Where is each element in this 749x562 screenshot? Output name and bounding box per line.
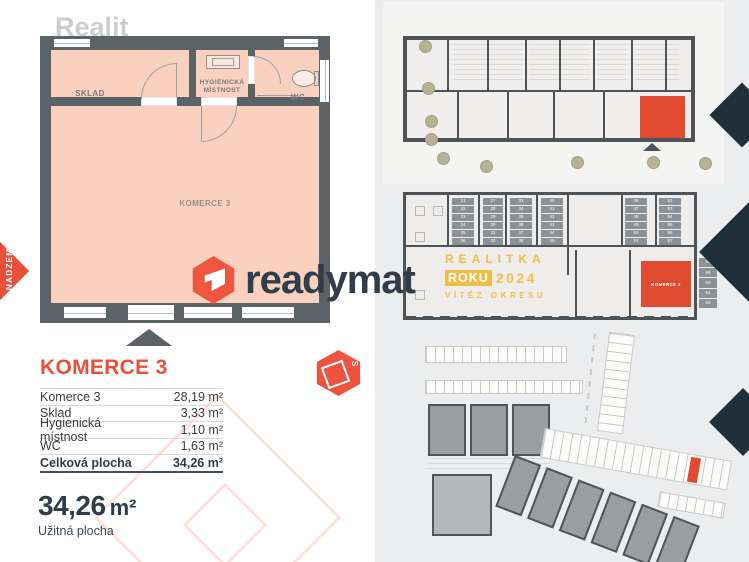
wall-segment: [505, 195, 507, 247]
row-label: Komerce 3: [40, 390, 100, 404]
storage-cell: 30: [483, 222, 503, 229]
parking-row: [425, 380, 583, 394]
storage-cell: 36: [510, 222, 532, 229]
award-badge-line1: REALITKA: [445, 252, 575, 266]
storage-cell: 35: [510, 214, 532, 221]
storage-cell: 21: [452, 198, 474, 205]
row-value: 34,26 m²: [151, 456, 223, 470]
unit-floor-plan: SKLAD HYGIENICKÁ MÍSTNOST WC KOMERCE 3: [0, 0, 375, 360]
area-unit: m²: [110, 495, 137, 521]
storage-cell: 27: [483, 198, 503, 205]
row-label: WC: [40, 439, 61, 453]
parking-row: [425, 346, 567, 363]
storage-column: 525354555657: [659, 198, 681, 245]
unit-title: KOMERCE 3: [40, 356, 223, 380]
tree-icon: [425, 115, 438, 128]
tree-icon: [647, 156, 660, 169]
door-leaf: [201, 106, 202, 142]
wall-segment: [478, 195, 480, 247]
storage-cell: 37: [510, 230, 532, 237]
row-value: 1,10 m²: [151, 423, 223, 437]
wall-interior-h: [51, 97, 319, 106]
unit-summary: KOMERCE 3 Komerce 3 28,19 m² Sklad 3,33 …: [40, 356, 223, 473]
brochure-page: Realit SKLAD: [0, 0, 749, 562]
tree-icon: [571, 156, 584, 169]
storage-cell: 52: [659, 198, 681, 205]
area-caption: Užitná plocha: [38, 524, 136, 538]
storage-column: 404142434445: [541, 198, 563, 245]
tree-icon: [437, 152, 450, 165]
storage-cell: 49: [625, 222, 647, 229]
storage-cell: 38: [510, 238, 532, 245]
storage-cell: 26: [452, 238, 474, 245]
door-opening: [201, 97, 237, 106]
compass-square-outline: [321, 360, 350, 389]
entrance-door: [128, 305, 174, 320]
parking-row: [597, 332, 635, 434]
wall-segment: [447, 195, 449, 247]
window-icon: [184, 307, 232, 318]
storage-cell: 57: [659, 238, 681, 245]
storage-cell: 44: [541, 230, 563, 237]
building-overview-panel: 212223242526 272829303132 333435363738 4…: [375, 0, 749, 562]
storage-column: 272829303132: [483, 198, 503, 245]
award-badge-line2: ROKU 2024: [445, 270, 575, 286]
facade-dashed-wall: [406, 316, 694, 319]
storage-cell: 40: [541, 198, 563, 205]
area-value: 34,26: [38, 490, 106, 522]
room-label-main: KOMERCE 3: [160, 199, 250, 208]
award-badge-word: ROKU: [445, 270, 492, 286]
storage-cell: 43: [541, 222, 563, 229]
building-block: [432, 474, 492, 536]
storage-cell: 47: [625, 206, 647, 213]
room-label-hygiene-line2: MÍSTNOST: [192, 87, 252, 95]
logo-flag-mark: [202, 268, 225, 292]
tree-icon: [425, 133, 438, 146]
wall-segment: [629, 250, 631, 318]
storage-cell: 54: [659, 214, 681, 221]
storage-column: 333435363738: [510, 198, 532, 245]
award-badge-line3: VÍTĚZ OKRESU: [445, 291, 575, 300]
award-badge: REALITKA ROKU 2024 VÍTĚZ OKRESU: [445, 252, 575, 300]
window-icon: [54, 39, 90, 47]
door-leaf: [176, 63, 177, 97]
storage-cell: 51: [625, 238, 647, 245]
room-label-hygiene-line1: HYGIENICKÁ: [192, 79, 252, 87]
row-label: Celková plocha: [40, 456, 132, 470]
table-row: Hygienická místnost 1,10 m²: [40, 422, 223, 439]
table-row: Komerce 3 28,19 m²: [40, 389, 223, 406]
readymat-logo-icon: [191, 256, 236, 304]
room-label-hygiene: HYGIENICKÁ MÍSTNOST: [192, 79, 252, 95]
furniture-icon: [415, 290, 425, 300]
tree-icon: [419, 40, 432, 53]
storage-cell: 22: [452, 206, 474, 213]
usable-area: 34,26 m² Užitná plocha: [38, 490, 136, 538]
window-icon: [320, 60, 329, 102]
highlighted-unit-middle: KOMERCE 3: [641, 261, 691, 307]
row-value: 1,63 m²: [151, 439, 223, 453]
storage-cell: 34: [510, 206, 532, 213]
storage-cell: 42: [541, 214, 563, 221]
storage-cell: 33: [510, 198, 532, 205]
toilet-icon: [314, 71, 319, 86]
storage-cell: 61: [699, 289, 717, 298]
wall-segment: [621, 195, 623, 247]
storage-cell: 45: [541, 238, 563, 245]
storage-cell: 56: [659, 230, 681, 237]
tree-icon: [699, 157, 712, 170]
storage-cell: 46: [625, 198, 647, 205]
level-badge-label: 1. NADZEMNÍ: [2, 238, 16, 302]
window-icon: [242, 307, 294, 318]
tree-icon: [422, 82, 435, 95]
readymat-logo: readymat: [191, 256, 415, 304]
storage-cell: 60: [699, 278, 717, 287]
wall-segment: [536, 195, 538, 247]
area-table: Komerce 3 28,19 m² Sklad 3,33 m² Hygieni…: [40, 388, 223, 473]
wall-segment: [655, 195, 657, 247]
storage-cell: 28: [483, 206, 503, 213]
toilet-icon: [292, 70, 316, 87]
storage-cell: 25: [452, 230, 474, 237]
building-block: [470, 404, 508, 456]
storage-cell: 29: [483, 214, 503, 221]
window-icon: [64, 307, 106, 318]
usable-area-value-row: 34,26 m²: [38, 490, 136, 522]
wall-segment: [406, 245, 694, 247]
storage-cell: 53: [659, 206, 681, 213]
table-row-total: Celková plocha 34,26 m²: [40, 455, 223, 473]
building-block: [428, 404, 466, 456]
storage-column: 212223242526: [452, 198, 474, 245]
tree-icon: [480, 160, 493, 173]
storage-cell: 31: [483, 230, 503, 237]
storage-cell: 32: [483, 238, 503, 245]
furniture-icon: [433, 206, 443, 216]
wall-segment: [575, 250, 577, 318]
furniture-icon: [415, 206, 425, 216]
storage-cell: 24: [452, 222, 474, 229]
compass-letter: S: [350, 361, 359, 366]
storage-cell: 55: [659, 222, 681, 229]
site-plan: [375, 330, 749, 562]
award-badge-year: 2024: [496, 270, 537, 286]
highlighted-unit-label: KOMERCE 3: [651, 282, 680, 287]
entrance-arrow-icon: [126, 329, 172, 346]
furniture-icon: [415, 232, 425, 242]
highlighted-parking-stall: [687, 457, 701, 483]
row-value: 3,33 m²: [151, 406, 223, 420]
trees: [375, 0, 749, 190]
readymat-logo-text: readymat: [245, 260, 415, 300]
storage-cell: 48: [625, 214, 647, 221]
storage-cell: 23: [452, 214, 474, 221]
storage-cell: 41: [541, 206, 563, 213]
room-label-sklad: SKLAD: [60, 89, 120, 98]
storage-cell: 50: [625, 230, 647, 237]
storage-column: 464748495051: [625, 198, 647, 245]
window-icon: [284, 39, 318, 47]
room-label-wc: WC: [284, 93, 312, 102]
road-dash-line: [584, 333, 595, 428]
storage-cell: 59: [699, 268, 717, 277]
wall-left: [40, 36, 51, 323]
storage-cell: 62: [699, 299, 717, 308]
sink-icon: [212, 58, 234, 66]
row-value: 28,19 m²: [151, 390, 223, 404]
